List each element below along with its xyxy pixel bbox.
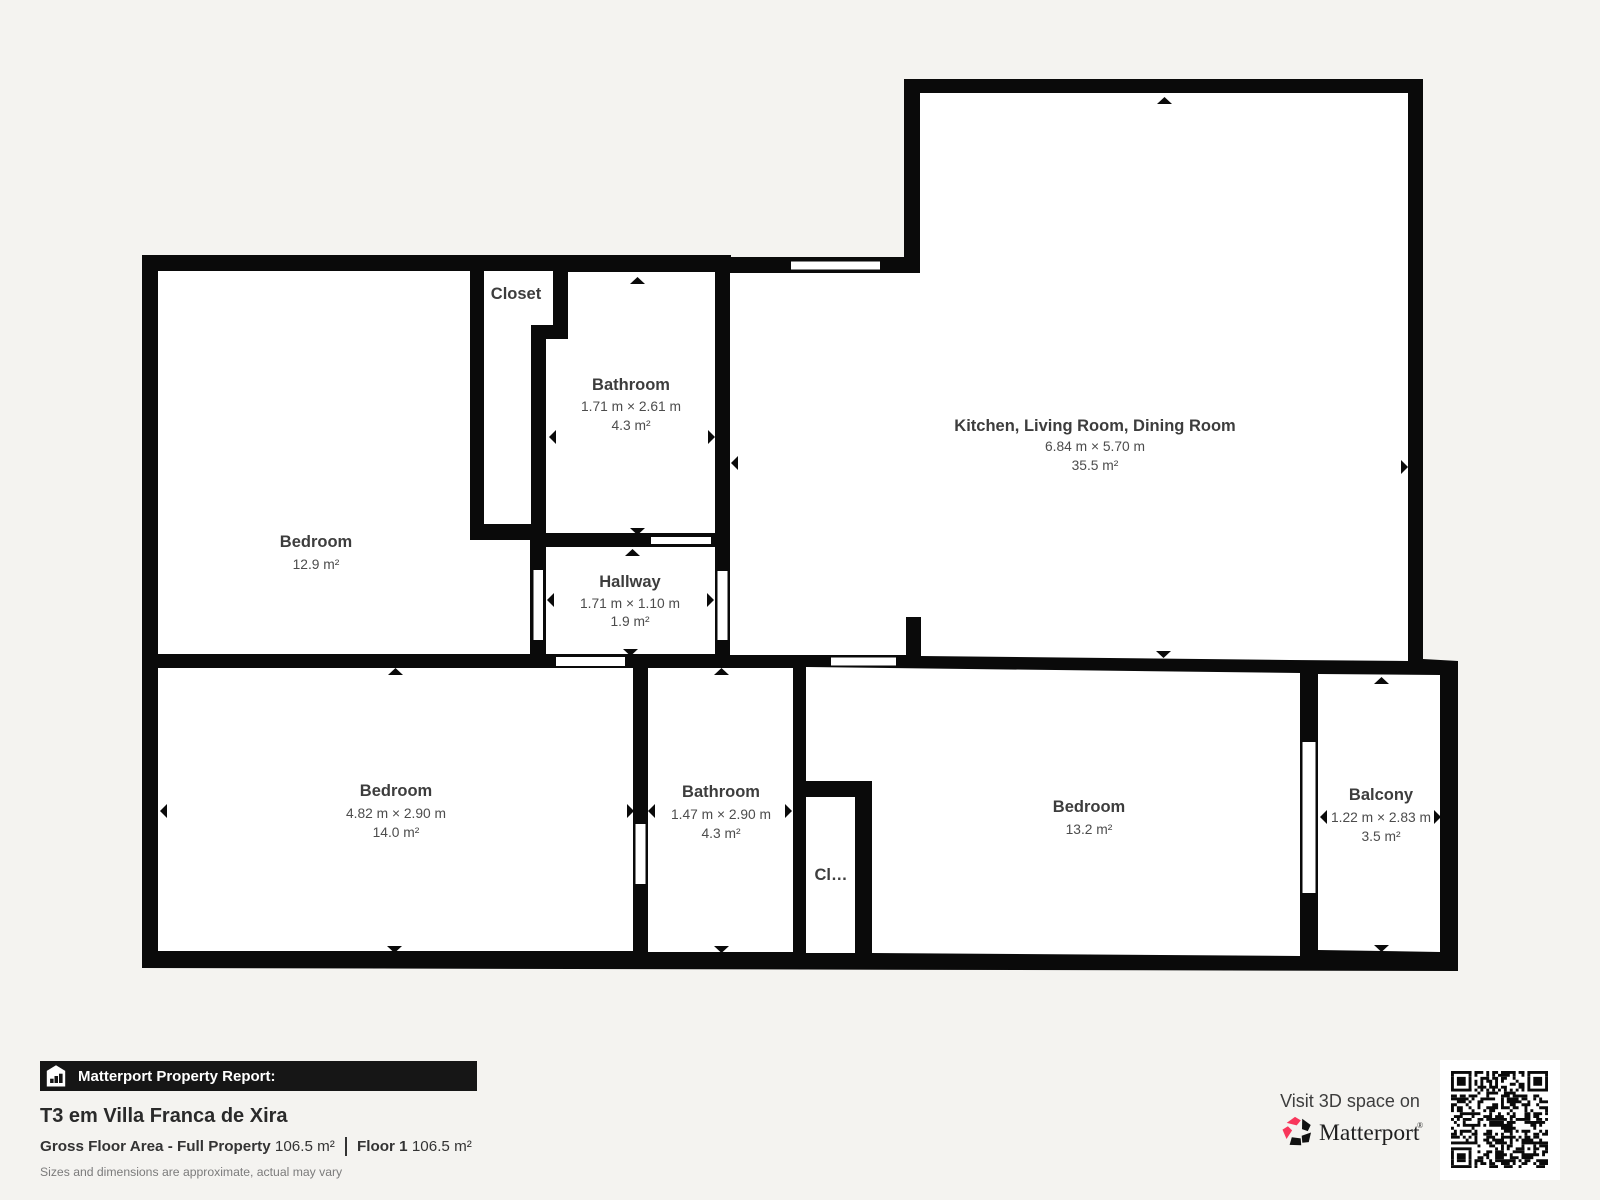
svg-text:Matterport: Matterport xyxy=(1319,1120,1420,1146)
svg-text:4.3 m²: 4.3 m² xyxy=(701,826,741,841)
svg-text:4.82 m × 2.90 m: 4.82 m × 2.90 m xyxy=(346,806,446,821)
svg-text:1.71 m × 2.61 m: 1.71 m × 2.61 m xyxy=(581,399,681,414)
svg-text:Gross Floor Area - Full Proper: Gross Floor Area - Full Property 106.5 m… xyxy=(40,1138,335,1155)
svg-text:Bedroom: Bedroom xyxy=(280,533,352,551)
svg-text:1.71 m × 1.10 m: 1.71 m × 1.10 m xyxy=(580,596,680,611)
svg-text:Kitchen, Living Room, Dining R: Kitchen, Living Room, Dining Room xyxy=(954,417,1235,435)
svg-text:4.3 m²: 4.3 m² xyxy=(611,418,651,433)
svg-text:Cl…: Cl… xyxy=(815,866,848,884)
svg-text:®: ® xyxy=(1417,1121,1423,1130)
svg-text:Bathroom: Bathroom xyxy=(592,376,670,394)
svg-text:13.2 m²: 13.2 m² xyxy=(1066,822,1113,837)
svg-text:12.9 m²: 12.9 m² xyxy=(293,557,340,572)
svg-text:Bedroom: Bedroom xyxy=(360,782,432,800)
svg-text:Hallway: Hallway xyxy=(599,573,661,591)
svg-text:Sizes and dimensions are appro: Sizes and dimensions are approximate, ac… xyxy=(40,1165,343,1179)
svg-text:Bedroom: Bedroom xyxy=(1053,798,1125,816)
svg-text:Matterport Property Report:: Matterport Property Report: xyxy=(78,1068,276,1085)
svg-text:Closet: Closet xyxy=(491,285,542,303)
svg-text:14.0 m²: 14.0 m² xyxy=(373,825,420,840)
svg-text:6.84 m × 5.70 m: 6.84 m × 5.70 m xyxy=(1045,439,1145,454)
svg-text:3.5 m²: 3.5 m² xyxy=(1361,829,1401,844)
svg-text:Balcony: Balcony xyxy=(1349,786,1414,804)
svg-text:Floor 1 106.5 m²: Floor 1 106.5 m² xyxy=(357,1138,472,1155)
svg-text:1.47 m × 2.90 m: 1.47 m × 2.90 m xyxy=(671,807,771,822)
svg-text:1.22 m × 2.83 m: 1.22 m × 2.83 m xyxy=(1331,810,1431,825)
svg-text:1.9 m²: 1.9 m² xyxy=(610,614,650,629)
svg-text:Bathroom: Bathroom xyxy=(682,783,760,801)
svg-text:Visit 3D space on: Visit 3D space on xyxy=(1280,1091,1420,1111)
svg-text:T3 em Villa Franca de Xira: T3 em Villa Franca de Xira xyxy=(40,1105,288,1127)
svg-text:35.5 m²: 35.5 m² xyxy=(1072,458,1119,473)
